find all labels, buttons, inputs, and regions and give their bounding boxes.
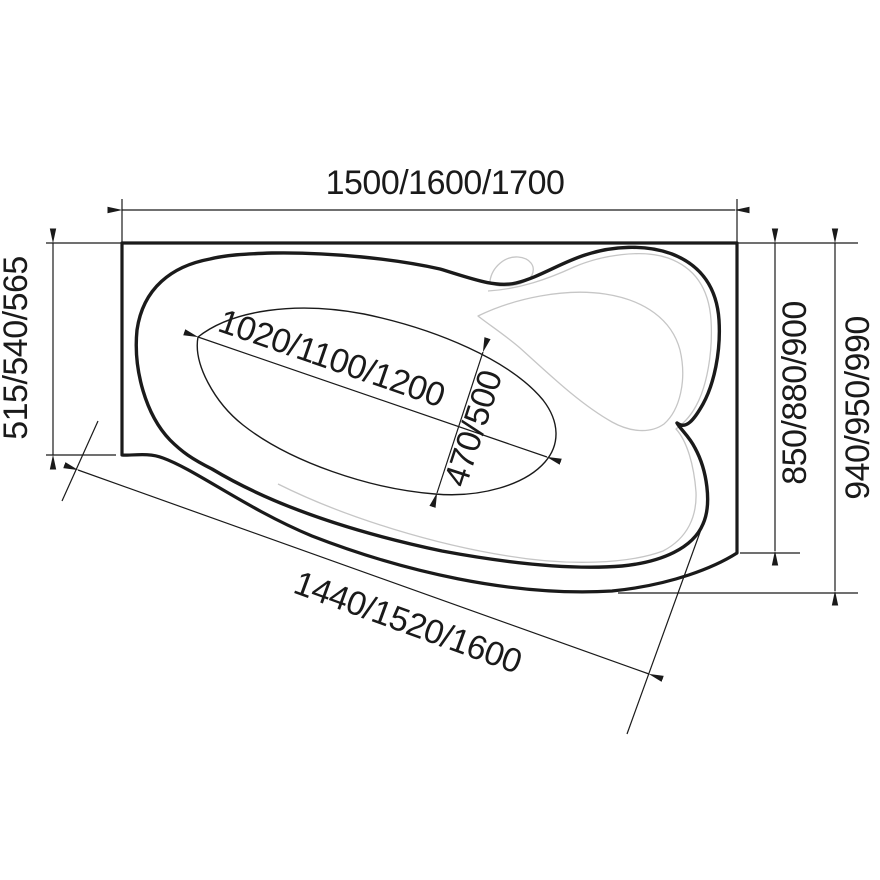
dim-left-depth-label: 515/540/565	[0, 256, 35, 440]
dim-right-inner-depth-label: 850/880/900	[776, 301, 814, 485]
extension-line	[62, 421, 98, 501]
dim-left-depth: 515/540/565	[0, 243, 122, 455]
bathtub-technical-drawing: 1500/1600/1700 515/540/565 1020/1100/120…	[0, 0, 880, 880]
dim-inner-width-label: 470/500	[437, 366, 510, 491]
dim-right-outer-depth: 940/950/990	[618, 243, 877, 593]
dim-inner-length-label: 1020/1100/1200	[214, 302, 450, 415]
backrest-contour	[478, 292, 683, 430]
drawing-canvas: 1500/1600/1700 515/540/565 1020/1100/120…	[0, 0, 880, 880]
dim-top-width-label: 1500/1600/1700	[326, 164, 565, 202]
dim-right-outer-depth-label: 940/950/990	[839, 316, 877, 500]
dimension-line	[78, 470, 649, 674]
faucet-ledge-contour	[490, 257, 533, 286]
dim-top-width: 1500/1600/1700	[122, 164, 737, 243]
dim-bottom-edge: 1440/1520/1600	[62, 421, 703, 734]
dim-bottom-edge-label: 1440/1520/1600	[289, 564, 526, 681]
